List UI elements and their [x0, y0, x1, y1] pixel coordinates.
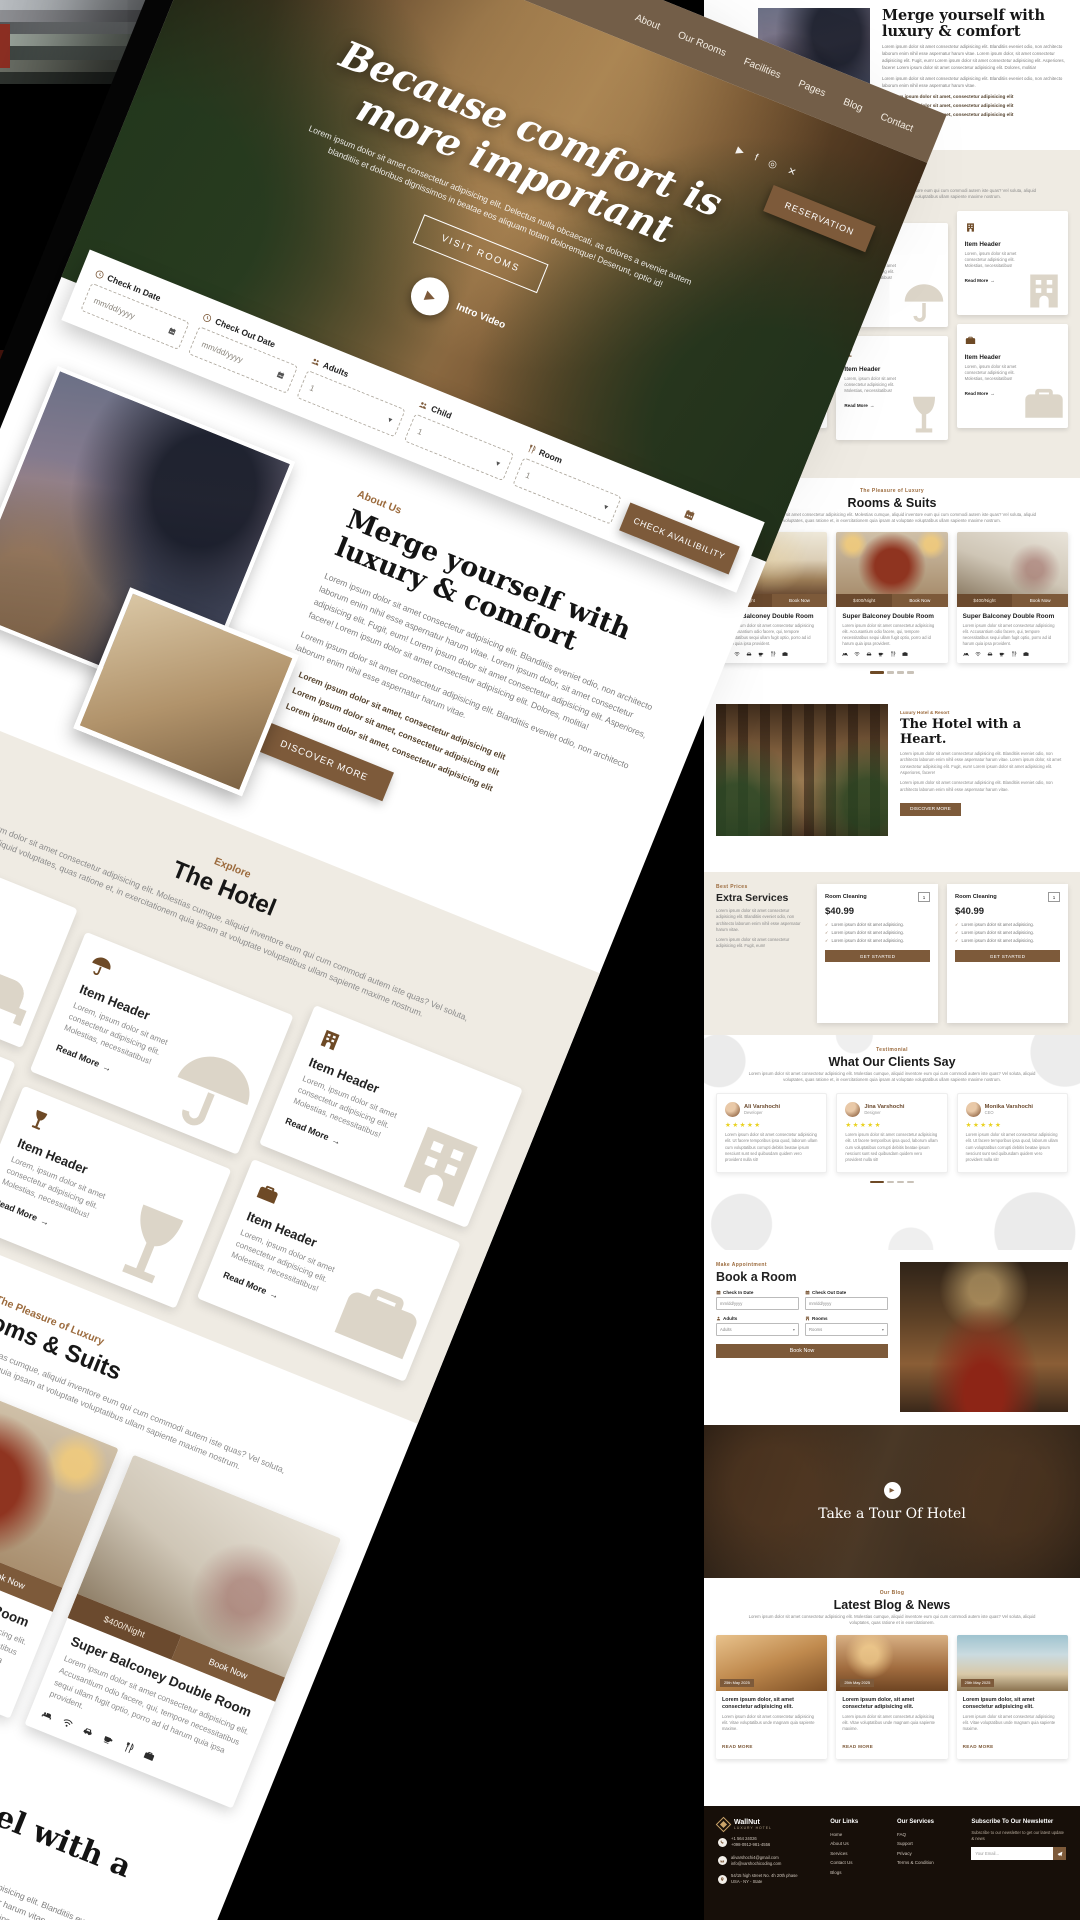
utensils-icon [122, 1741, 136, 1755]
facebook-icon[interactable]: f [753, 152, 760, 163]
blog-title: Latest Blog & News [716, 1598, 1068, 1612]
newsletter-column: Subscribe To Our Newsletter Subscribe to… [971, 1819, 1066, 1907]
coffee-icon [758, 651, 764, 657]
arrow-right-icon: → [330, 1134, 342, 1147]
feature-card: Item Header Lorem, ipsum dolor sit amet … [836, 336, 947, 440]
clock-icon [94, 268, 106, 280]
clock-icon [202, 312, 214, 324]
service-price: $40.99 [825, 906, 930, 917]
send-icon [1057, 1851, 1063, 1857]
footer-link[interactable]: Contact Us [830, 1858, 887, 1867]
star-rating: ★★★★★ [725, 1121, 818, 1129]
about-paragraph: Lorem ipsum dolor sit amet consectetur a… [882, 76, 1068, 90]
car-icon [866, 651, 872, 657]
footer-links-column: Our Links Home About Us Services Contact… [830, 1819, 887, 1907]
testimonials-title: What Our Clients Say [716, 1055, 1068, 1069]
arrow-right-icon: → [101, 1061, 113, 1074]
bed-icon [40, 1708, 54, 1722]
bed-icon [842, 651, 848, 657]
utensils-icon [526, 443, 538, 455]
get-started-button[interactable]: GET STARTED [955, 950, 1060, 962]
user-icon [716, 1316, 721, 1321]
wine-icon [902, 394, 946, 438]
carousel-dot[interactable] [907, 1181, 914, 1184]
checkout-input[interactable]: mm/dd/yyyy [805, 1297, 888, 1310]
footer-link[interactable]: Home [830, 1830, 887, 1839]
adults-select[interactable]: Adults▾ [716, 1323, 799, 1336]
briefcase-icon [1023, 651, 1029, 657]
amenities-row [722, 651, 821, 657]
nav-link-about[interactable]: About [634, 12, 662, 32]
briefcase-icon [1022, 382, 1066, 426]
footer-link[interactable]: Privacy [897, 1849, 961, 1858]
carousel-dot[interactable] [897, 671, 904, 674]
check-icon: ✓ [955, 921, 959, 929]
arrow-right-icon: → [870, 403, 875, 408]
about-title: Merge yourself with luxury & comfort [882, 8, 1068, 40]
footer-services-column: Our Services FAQ Support Privacy Terms &… [897, 1819, 961, 1907]
building-icon [805, 1316, 810, 1321]
read-more-link[interactable]: READ MORE [963, 1744, 994, 1749]
footer-link[interactable]: Support [897, 1839, 961, 1848]
get-started-button[interactable]: GET STARTED [825, 950, 930, 962]
room-photo [836, 532, 947, 594]
check-icon: ✓ [825, 921, 829, 929]
staircase-photo [900, 1262, 1068, 1412]
wine-icon [24, 1106, 53, 1135]
carousel-dot[interactable] [870, 671, 884, 674]
service-card: Room Cleaning1 $40.99 ✓Lorem ipsum dolor… [947, 884, 1068, 1023]
wifi-icon [60, 1716, 74, 1730]
avatar [725, 1102, 740, 1117]
room-card: $400/NightBook Now Super Balconey Double… [836, 532, 947, 664]
services-label: Best Prices [716, 884, 808, 890]
star-rating: ★★★★★ [845, 1121, 938, 1129]
adults-field: Adults Adults▾ [716, 1316, 799, 1336]
building-icon [965, 222, 976, 233]
brand-logo-icon [716, 1817, 732, 1833]
play-icon[interactable]: ▶ [406, 272, 455, 321]
carousel-dot[interactable] [907, 671, 914, 674]
rooms-field: Rooms Rooms▾ [805, 1316, 888, 1336]
calendar-icon [682, 508, 696, 522]
footer: WallNutLUXURY HOTEL +1 564 24026+098-091… [704, 1806, 1080, 1920]
book-now-button[interactable]: Book Now [1012, 594, 1068, 607]
arrow-right-icon: → [990, 278, 995, 283]
chevron-down-icon: ▾ [387, 415, 394, 425]
newsletter-send-button[interactable] [1053, 1847, 1066, 1860]
book-room-title: Book a Room [716, 1270, 888, 1284]
room-photo [957, 532, 1068, 594]
checkin-field: Check In Date mm/dd/yyyy [716, 1290, 799, 1310]
amenities-row [842, 651, 941, 657]
blog-section: Our Blog Latest Blog & News Lorem ipsum … [704, 1578, 1080, 1806]
wifi-icon [975, 651, 981, 657]
nav-link-our-rooms[interactable]: Our Rooms [676, 29, 728, 58]
building-icon [316, 1025, 345, 1054]
chevron-down-icon: ▾ [882, 1327, 884, 1332]
carousel-dots [716, 671, 1068, 674]
briefcase-icon [965, 335, 976, 346]
mail-icon [720, 1859, 725, 1864]
chevron-down-icon: ▾ [603, 502, 610, 512]
feature-card: Item Header Lorem, ipsum dolor sit amet … [957, 211, 1068, 315]
client-role: Developer [744, 1110, 780, 1115]
wifi-icon [734, 651, 740, 657]
check-icon: ✓ [955, 929, 959, 937]
testimonial-card: Jina VarshochiDesigner ★★★★★ Lorem ipsum… [836, 1093, 947, 1173]
intro-video-label: Intro Video [454, 302, 506, 332]
rooms-select[interactable]: Rooms▾ [805, 1323, 888, 1336]
umbrella-icon [87, 952, 116, 981]
heart-title: The Hotel with a Heart. [900, 718, 1068, 747]
avatar [966, 1102, 981, 1117]
footer-link[interactable]: Blogs [830, 1868, 887, 1877]
car-icon [81, 1724, 95, 1738]
footer-link[interactable]: Services [830, 1849, 887, 1858]
pin-icon [720, 1877, 725, 1882]
check-icon: ✓ [955, 937, 959, 945]
nav-link-blog[interactable]: Blog [842, 96, 865, 114]
checkout-field: Check Out Date mm/dd/yyyy [805, 1290, 888, 1310]
tour-section: ▶ Take a Tour Of Hotel [704, 1425, 1080, 1578]
footer-link[interactable]: About Us [830, 1839, 887, 1848]
blog-photo: 25th May 2025 [716, 1635, 827, 1691]
glitch-mark [0, 24, 10, 68]
blog-date-badge: 25th May 2025 [720, 1679, 754, 1687]
arrow-right-icon: → [990, 391, 995, 396]
read-more-link[interactable]: Read More→ [965, 391, 995, 396]
book-now-button[interactable]: Book Now [892, 594, 948, 607]
nav-link-pages[interactable]: Pages [797, 78, 827, 99]
wifi-icon [854, 651, 860, 657]
blog-card: 25th May 2025 Lorem ipsum dolor, sit ame… [957, 1635, 1068, 1759]
carousel-dot[interactable] [887, 1181, 894, 1184]
book-now-button[interactable]: Book Now [716, 1344, 888, 1358]
services-title: Extra Services [716, 892, 808, 904]
briefcase-icon [142, 1749, 156, 1763]
read-more-link[interactable]: READ MORE [842, 1744, 873, 1749]
footer-phone: +1 564 24026+098-0912-981-4556 [718, 1836, 820, 1849]
briefcase-icon [782, 651, 788, 657]
room-card: $400/NightBook Now Super Balconey Double… [957, 532, 1068, 664]
read-more-link[interactable]: Read More→ [965, 278, 995, 283]
play-icon[interactable]: ▶ [884, 1482, 901, 1499]
chevron-down-icon: ▾ [495, 458, 502, 468]
coffee-icon [878, 651, 884, 657]
umbrella-icon [902, 281, 946, 325]
testimonial-card: Ali VarshochiDeveloper ★★★★★ Lorem ipsum… [716, 1093, 827, 1173]
blog-post-title[interactable]: Lorem ipsum dolor, sit amet consectetur … [722, 1697, 821, 1711]
blog-card: 25th May 2025 Lorem ipsum dolor, sit ame… [836, 1635, 947, 1759]
brand-name: WallNut [734, 1819, 772, 1826]
avatar [845, 1102, 860, 1117]
utensils-icon [890, 651, 896, 657]
discover-more-button[interactable]: DISCOVER MORE [900, 803, 961, 816]
brand-tagline: LUXURY HOTEL [734, 1826, 772, 1830]
calendar-icon [716, 1290, 721, 1295]
blog-card: 25th May 2025 Lorem ipsum dolor, sit ame… [716, 1635, 827, 1759]
nav-link-contact[interactable]: Contact [879, 111, 915, 134]
quantity-stepper[interactable]: 1 [918, 892, 930, 902]
carousel-dots [716, 1181, 1068, 1184]
book-now-button[interactable]: Book Now [772, 594, 828, 607]
glitch-mark [0, 350, 6, 380]
utensils-icon [1011, 651, 1017, 657]
testimonials-label: Testimonial [716, 1047, 1068, 1053]
feature-card: Item Header Lorem, ipsum dolor sit amet … [957, 324, 1068, 428]
nav-link-facilities[interactable]: Facilities [742, 56, 782, 81]
book-room-section: Make Appointment Book a Room Check In Da… [704, 1250, 1080, 1425]
briefcase-icon [902, 651, 908, 657]
car-icon [746, 651, 752, 657]
coffee-icon [999, 651, 1005, 657]
briefcase-icon [254, 1179, 283, 1208]
check-icon: ✓ [825, 929, 829, 937]
quantity-stepper[interactable]: 1 [1048, 892, 1060, 902]
testimonial-card: Monika VarshochiCEO ★★★★★ Lorem ipsum do… [957, 1093, 1068, 1173]
coffee-icon [101, 1732, 115, 1746]
service-name: Room Cleaning [825, 894, 867, 900]
calendar-icon [275, 370, 285, 380]
tour-title: Take a Tour Of Hotel [818, 1506, 966, 1522]
calendar-icon [805, 1290, 810, 1295]
carousel-dot[interactable] [870, 1181, 884, 1184]
rooms-subtitle: Lorem, ipsum dolor sit amet consectetur … [744, 512, 1040, 525]
extra-services-section: Best Prices Extra Services Lorem ipsum d… [704, 872, 1080, 1035]
footer-link[interactable]: Terms & Condition [897, 1858, 961, 1867]
client-name: Ali Varshochi [744, 1104, 780, 1110]
newsletter-input[interactable]: Your Email... [971, 1847, 1066, 1860]
testimonials-section: Testimonial What Our Clients Say Lorem i… [704, 1035, 1080, 1250]
read-more-link[interactable]: Read More→ [844, 403, 874, 408]
read-more-link[interactable]: READ MORE [722, 1744, 753, 1749]
calendar-icon [167, 326, 177, 336]
carousel-dot[interactable] [887, 671, 894, 674]
users-icon [310, 355, 322, 367]
phone-icon [720, 1840, 725, 1845]
checkin-input[interactable]: mm/dd/yyyy [716, 1297, 799, 1310]
footer-link[interactable]: FAQ [897, 1830, 961, 1839]
footer-email: alivarshochi4@gmail.cominfo@varshochicod… [718, 1855, 820, 1868]
hotel-heart-section: Luxury Hotel & Resort The Hotel with a H… [704, 692, 1080, 872]
amenities-row [963, 651, 1062, 657]
footer-address: 54/15 high street No. 4h 20th phaseUSA -… [718, 1873, 820, 1886]
star-rating: ★★★★★ [966, 1121, 1059, 1129]
about-paragraph: Lorem ipsum dolor sit amet consectetur a… [882, 44, 1068, 71]
service-card: Room Cleaning1 $40.99 ✓Lorem ipsum dolor… [817, 884, 938, 1023]
book-room-label: Make Appointment [716, 1262, 888, 1268]
lobby-photo [716, 704, 888, 836]
car-icon [987, 651, 993, 657]
users-icon [418, 399, 430, 411]
heart-label: Luxury Hotel & Resort [900, 710, 1068, 715]
check-icon: ✓ [825, 937, 829, 945]
utensils-icon [770, 651, 776, 657]
carousel-dot[interactable] [897, 1181, 904, 1184]
blog-label: Our Blog [716, 1590, 1068, 1596]
arrow-right-icon: → [39, 1215, 51, 1228]
chevron-down-icon: ▾ [793, 1327, 795, 1332]
blog-photo: 25th May 2025 [957, 1635, 1068, 1691]
design-preview-canvas: Merge yourself with luxury & comfort Lor… [0, 0, 1080, 1920]
blog-photo: 25th May 2025 [836, 1635, 947, 1691]
building-icon [1022, 269, 1066, 313]
arrow-right-icon: → [268, 1288, 280, 1301]
bed-icon [963, 651, 969, 657]
